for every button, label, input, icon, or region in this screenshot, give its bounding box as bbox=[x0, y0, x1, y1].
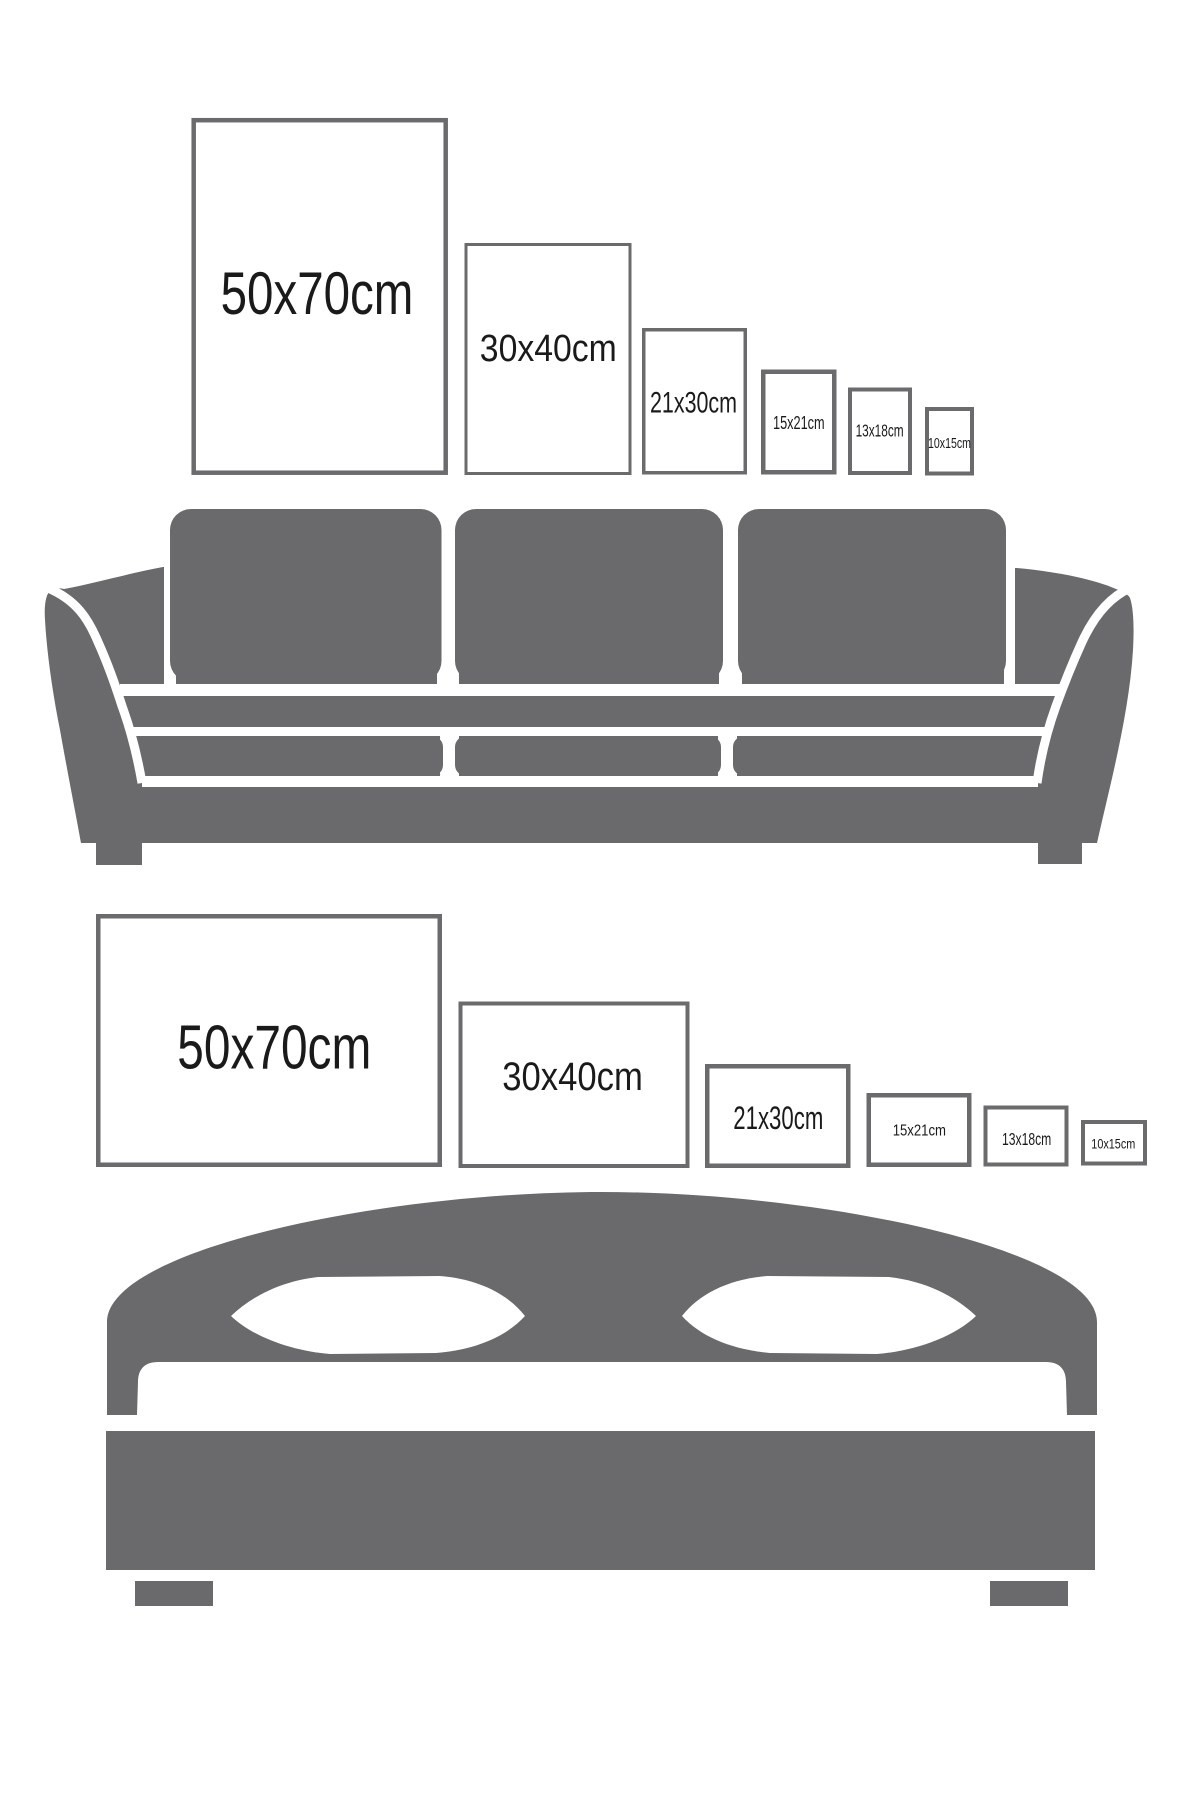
svg-text:10x15cm: 10x15cm bbox=[1091, 1136, 1135, 1152]
svg-text:21x30cm: 21x30cm bbox=[733, 1100, 823, 1136]
svg-text:13x18cm: 13x18cm bbox=[1002, 1129, 1051, 1149]
svg-text:13x18cm: 13x18cm bbox=[856, 421, 904, 441]
svg-text:30x40cm: 30x40cm bbox=[502, 1055, 643, 1099]
svg-text:50x70cm: 50x70cm bbox=[177, 1014, 371, 1083]
svg-text:50x70cm: 50x70cm bbox=[221, 260, 414, 327]
svg-text:21x30cm: 21x30cm bbox=[650, 386, 737, 419]
svg-text:10x15cm: 10x15cm bbox=[928, 436, 971, 452]
svg-text:15x21cm: 15x21cm bbox=[893, 1123, 946, 1140]
svg-text:15x21cm: 15x21cm bbox=[773, 413, 825, 433]
svg-text:30x40cm: 30x40cm bbox=[480, 328, 617, 370]
